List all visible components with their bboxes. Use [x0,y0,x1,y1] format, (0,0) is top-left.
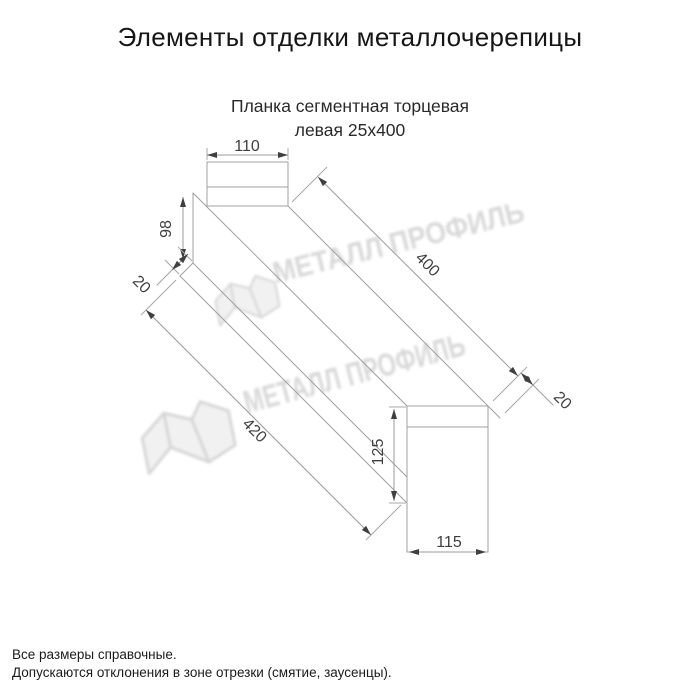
metal-profile-logo-icon [138,397,238,474]
footnotes: Все размеры справочные. Допускаются откл… [12,646,392,681]
dim-label-left-flap: 20 [129,273,154,298]
dim-label-right-height: 125 [370,439,387,466]
watermark-text: МЕТАЛЛ ПРОФИЛЬ [270,196,528,290]
right-end-tab-face [407,406,488,552]
dim-label-bottom-width: 115 [436,534,462,551]
watermark-layer: МЕТАЛЛ ПРОФИЛЬ МЕТАЛЛ ПРОФИЛЬ [138,196,528,474]
footnote-cut-zone: Допускаются отклонения в зоне отрезки (с… [12,664,392,682]
dim-label-right-flap: 20 [550,389,575,414]
drawing-page: Элементы отделки металлочерепицы Планка … [0,0,700,700]
footnote-reference-dims: Все размеры справочные. [12,646,392,664]
metal-profile-logo-icon [212,273,281,326]
technical-drawing: МЕТАЛЛ ПРОФИЛЬ МЕТАЛЛ ПРОФИЛЬ [0,0,700,700]
left-hem-edge [180,263,193,276]
dim-label-left-height: 98 [158,220,175,238]
dim-label-bottom-length: 420 [239,415,270,446]
bottom-hem-edge [180,276,406,502]
left-end-tab-face [207,162,288,206]
dim-line-20-left [172,254,188,270]
dim-label-top-width: 110 [234,138,260,155]
right-hem-edge [488,406,500,418]
dim-line-20-right [521,373,533,385]
